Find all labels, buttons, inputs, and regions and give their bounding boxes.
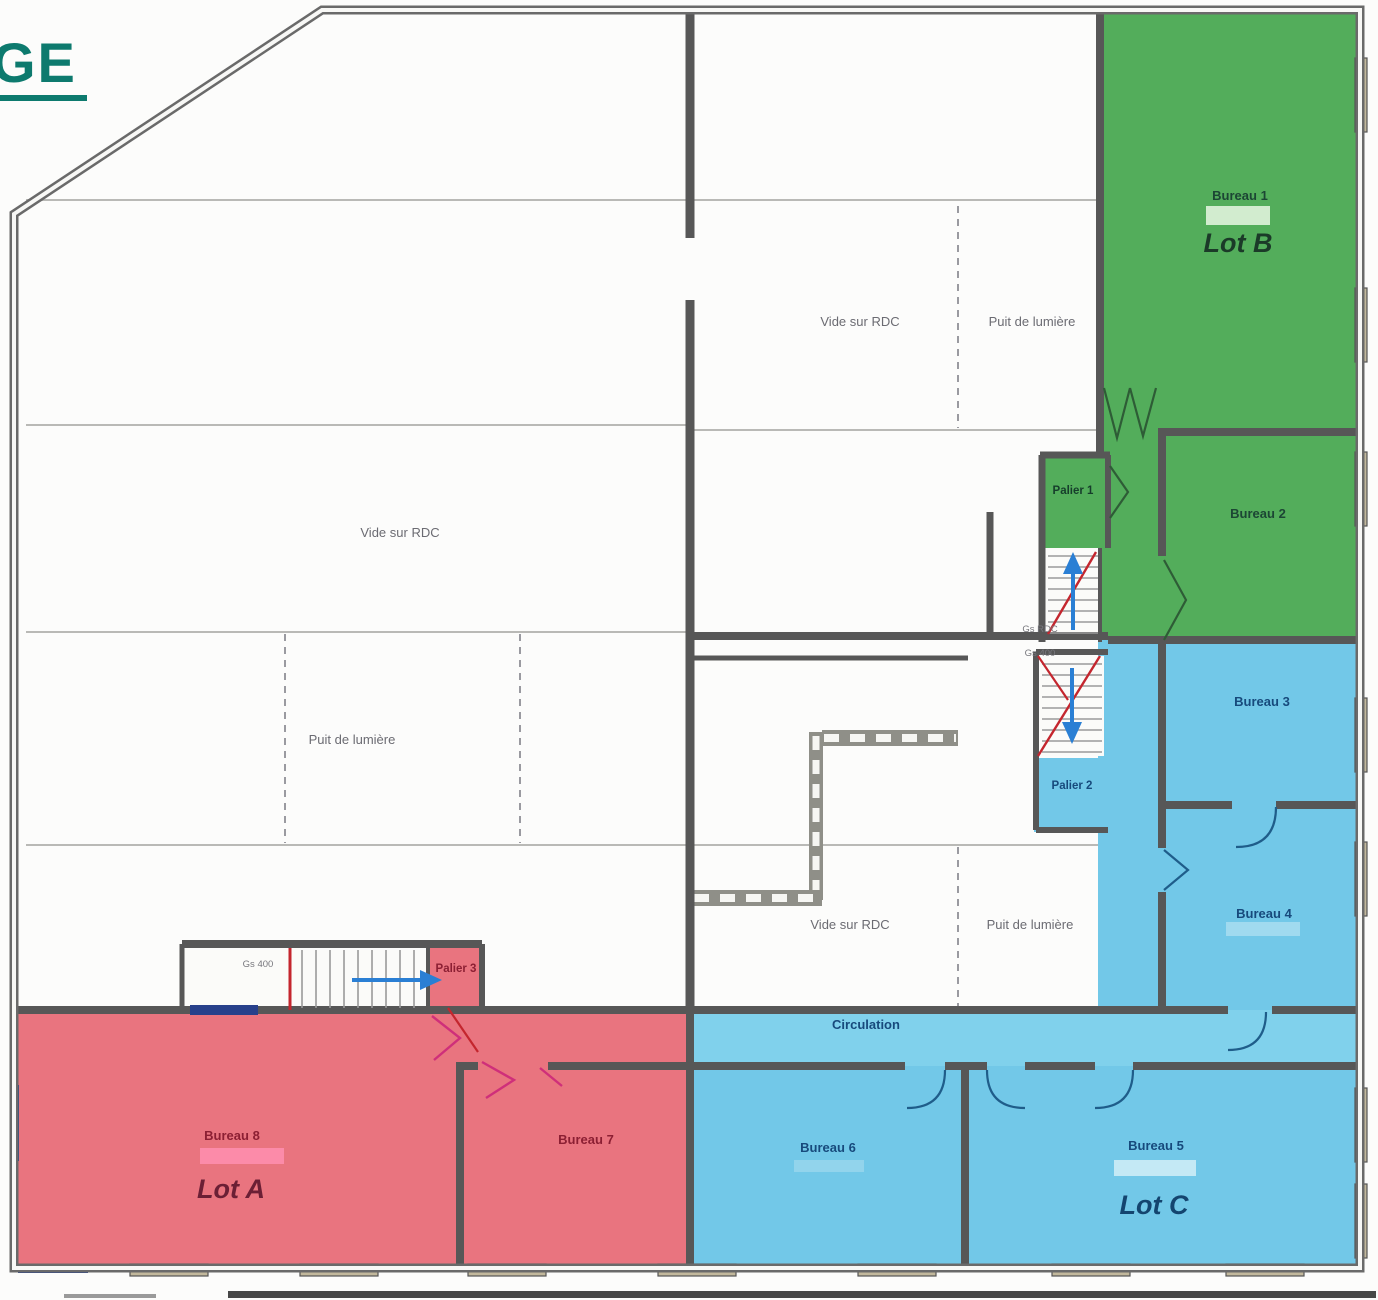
window-icon [190,1005,258,1015]
label-puit-de-lumiere-1: Puit de lumière [989,314,1076,329]
label-vide-sur-rdc-1: Vide sur RDC [820,314,899,329]
label-lot-b: Lot B [1204,228,1273,258]
label-bureau-2: Bureau 2 [1230,506,1286,521]
scan-band [228,1291,1376,1298]
room-bureau-5-6-area [692,1066,1364,1272]
surface-highlight [794,1160,864,1172]
label-puit-de-lumiere-2: Puit de lumière [309,732,396,747]
label-palier-2: Palier 2 [1052,780,1093,792]
label-bureau-3: Bureau 3 [1234,694,1290,709]
label-palier-3: Palier 3 [436,963,477,975]
surface-highlight [1226,922,1300,936]
label-circulation: Circulation [832,1017,900,1032]
label-palier-1: Palier 1 [1053,485,1095,497]
floor-opening-lines [26,200,1098,845]
surface-highlight [200,1148,284,1164]
surface-highlight [1206,206,1270,225]
circulation-area [678,1010,1364,1068]
room-bureau-1-area [1100,6,1364,642]
label-vide-sur-rdc-2: Vide sur RDC [360,525,439,540]
floor-plan-drawing: Vide sur RDC Puit de lumière Vide sur RD… [0,0,1378,1300]
label-gs-400-a: Gs 400 [1025,648,1056,659]
scan-edge-band [64,1291,1376,1298]
page-title: GE [0,34,87,101]
label-bureau-5: Bureau 5 [1128,1138,1184,1153]
label-gs-400-b: Gs 400 [243,959,274,970]
label-gs-rdc: Gs RDC [1022,624,1058,635]
label-bureau-7: Bureau 7 [558,1132,614,1147]
label-bureau-8: Bureau 8 [204,1128,260,1143]
label-bureau-6: Bureau 6 [800,1140,856,1155]
scan-band [64,1294,156,1298]
hatched-step-wall [692,732,958,900]
label-bureau-4: Bureau 4 [1236,906,1292,921]
label-vide-sur-rdc-3: Vide sur RDC [810,917,889,932]
palier-2-area [1034,758,1108,832]
floor-plan-page: Vide sur RDC Puit de lumière Vide sur RD… [0,0,1378,1300]
surface-highlight [1114,1160,1196,1176]
label-puit-de-lumiere-3: Puit de lumière [987,917,1074,932]
lot-c-zone [678,640,1364,1272]
label-lot-a: Lot A [197,1174,265,1204]
label-lot-c: Lot C [1120,1190,1189,1220]
lot-b-zone [1040,6,1364,642]
label-bureau-1: Bureau 1 [1212,188,1268,203]
palier-1-area [1040,455,1108,548]
